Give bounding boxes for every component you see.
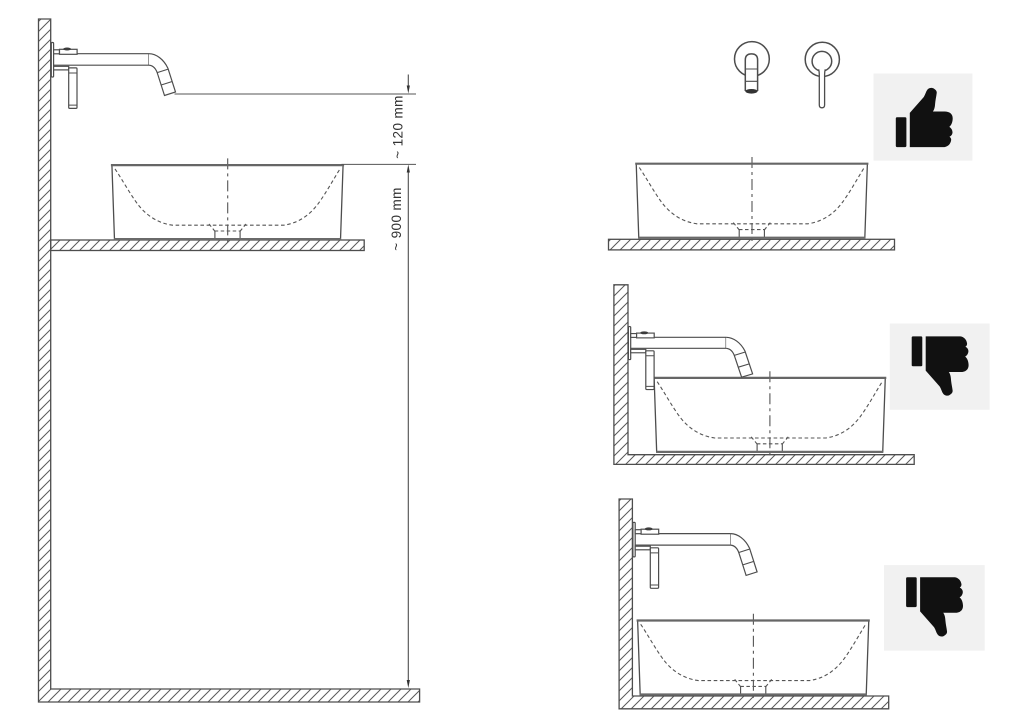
svg-text:~ 900 mm: ~ 900 mm <box>389 187 404 251</box>
svg-text:~ 120 mm: ~ 120 mm <box>391 95 406 159</box>
